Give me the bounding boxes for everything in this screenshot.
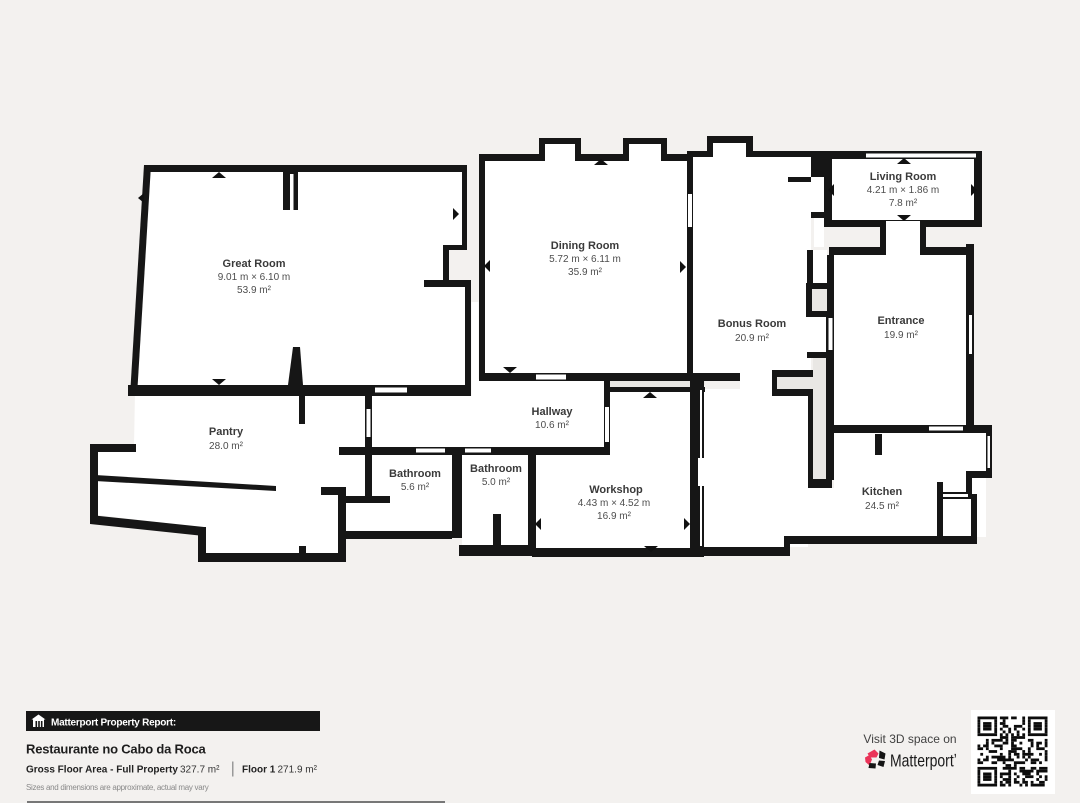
svg-text:35.9 m²: 35.9 m² <box>568 267 603 278</box>
svg-text:10.6 m²: 10.6 m² <box>535 420 570 431</box>
svg-text:9.01 m × 6.10 m: 9.01 m × 6.10 m <box>218 272 291 283</box>
svg-text:Matterport Property Report:: Matterport Property Report: <box>51 718 176 729</box>
svg-text:Kitchen: Kitchen <box>862 486 903 498</box>
svg-text:Pantry: Pantry <box>209 426 244 438</box>
svg-text:Sizes and dimensions are appro: Sizes and dimensions are approximate, ac… <box>26 783 209 792</box>
svg-text:Floor 1: Floor 1 <box>242 765 276 776</box>
svg-text:7.8 m²: 7.8 m² <box>889 198 918 209</box>
svg-text:5.6 m²: 5.6 m² <box>401 482 430 493</box>
svg-text:Entrance: Entrance <box>877 315 924 327</box>
svg-text:Restaurante no Cabo da Roca: Restaurante no Cabo da Roca <box>26 742 206 757</box>
svg-text:Matterportʼ: Matterportʼ <box>890 751 957 771</box>
svg-text:5.72 m × 6.11 m: 5.72 m × 6.11 m <box>549 254 621 265</box>
svg-text:4.21 m × 1.86 m: 4.21 m × 1.86 m <box>867 185 940 196</box>
svg-text:Bathroom: Bathroom <box>470 463 522 475</box>
svg-text:53.9 m²: 53.9 m² <box>237 285 272 296</box>
svg-text:Hallway: Hallway <box>532 406 574 418</box>
svg-text:Bathroom: Bathroom <box>389 468 441 480</box>
svg-text:19.9 m²: 19.9 m² <box>884 330 919 341</box>
svg-text:Dining Room: Dining Room <box>551 240 620 252</box>
svg-text:327.7 m²: 327.7 m² <box>180 765 220 776</box>
svg-text:Visit 3D space on: Visit 3D space on <box>863 732 956 746</box>
svg-text:5.0 m²: 5.0 m² <box>482 477 511 488</box>
svg-text:Workshop: Workshop <box>589 484 643 496</box>
svg-text:Living Room: Living Room <box>870 171 937 183</box>
svg-text:271.9 m²: 271.9 m² <box>278 765 318 776</box>
svg-text:Gross Floor Area - Full Proper: Gross Floor Area - Full Property <box>26 765 178 776</box>
svg-text:24.5 m²: 24.5 m² <box>865 501 900 512</box>
svg-text:28.0 m²: 28.0 m² <box>209 441 244 452</box>
svg-text:Great Room: Great Room <box>223 258 286 270</box>
svg-text:16.9 m²: 16.9 m² <box>597 511 632 522</box>
svg-text:4.43 m × 4.52 m: 4.43 m × 4.52 m <box>578 498 651 509</box>
svg-text:Bonus Room: Bonus Room <box>718 318 787 330</box>
svg-text:20.9 m²: 20.9 m² <box>735 333 770 344</box>
